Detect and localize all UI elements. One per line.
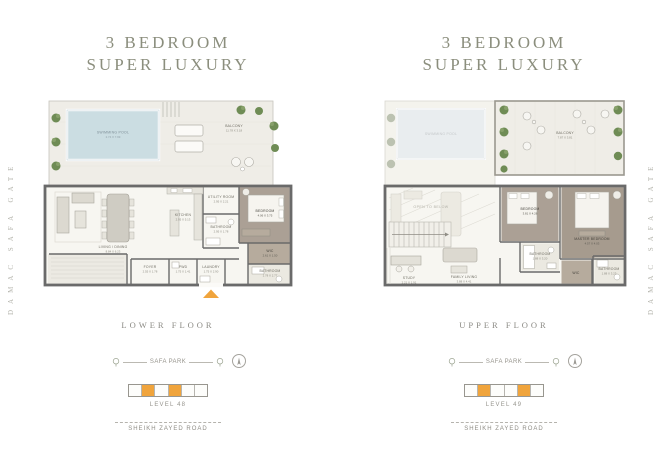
keyplan-unit	[155, 385, 168, 396]
compass-icon	[568, 354, 582, 368]
title-line2: SUPER LUXURY	[372, 54, 636, 76]
room-dims-wic: 2.61 X 1.50	[263, 254, 278, 258]
park-label: SAFA PARK	[486, 359, 522, 365]
room-dims-bathroom: 1.88 X 3.20	[533, 257, 548, 261]
terrace-ghost	[385, 101, 495, 186]
room-dims-powder: 1.75 X 1.41	[176, 270, 191, 274]
keyplan-unit	[182, 385, 195, 396]
room-label-utility: UTILITY ROOM	[208, 195, 234, 199]
room-label-master: MASTER BEDROOM	[574, 237, 609, 241]
deck-hatch	[48, 254, 126, 284]
room-label-bathroom: BATHROOM	[211, 225, 232, 229]
room-label-foyer: FOYER	[144, 265, 157, 269]
tree-icon	[552, 358, 560, 367]
upper-floor-panel: 3 BEDROOM SUPER LUXURY SWIMMING POOL	[372, 26, 636, 462]
room-label-bathroom2: BATHROOM	[599, 267, 620, 271]
room-dims-pool: 2.74 X 7.99	[106, 135, 121, 139]
keyplan-unit	[505, 385, 518, 396]
level-label-upper: LEVEL 49	[424, 402, 584, 408]
park-line	[123, 362, 147, 363]
park-row: SAFA PARK	[112, 356, 224, 368]
keyplan-unit	[129, 385, 142, 396]
page-title-lower: 3 BEDROOM SUPER LUXURY	[36, 32, 300, 76]
room-dims-balcony: 7.87 X 3.81	[558, 136, 573, 140]
park-row: SAFA PARK	[448, 356, 560, 368]
room-dims-balcony: 11.78 X 3.18	[226, 129, 243, 133]
room-label-wic: WIC	[572, 271, 580, 275]
keyplan-units	[464, 384, 544, 397]
keyplan-unit	[195, 385, 207, 396]
tree-icon	[112, 358, 120, 367]
floor-label-upper: UPPER FLOOR	[372, 320, 636, 330]
room-dims-study: 2.21 X 1.91	[402, 281, 417, 285]
keyplan-unit	[531, 385, 543, 396]
room-dims-utility: 2.95 X 2.21	[214, 200, 229, 204]
room-dims-bathroom: 2.95 X 1.78	[214, 230, 229, 234]
room-label-bathroom: BATHROOM	[530, 252, 551, 256]
room-label-family: FAMILY LIVING	[451, 275, 478, 279]
compass-icon	[232, 354, 246, 368]
road-label: SHEIKH ZAYED ROAD	[424, 426, 584, 432]
room-label-balcony: BALCONY	[556, 131, 574, 135]
lounger	[175, 125, 203, 136]
room-label-kitchen: KITCHEN	[175, 213, 192, 217]
entrance-arrow-icon	[203, 290, 219, 299]
road-label: SHEIKH ZAYED ROAD	[88, 426, 248, 432]
keyplan-unit-highlighted	[478, 385, 491, 396]
keyplan-footer-upper: SAFA PARK LEVEL 49 SHEIKH ZAYED ROAD	[424, 356, 584, 432]
room-label-bedroom: BEDROOM	[256, 209, 275, 213]
room-label-bathroom2: BATHROOM	[260, 269, 281, 273]
staircase	[389, 222, 451, 247]
park-label: SAFA PARK	[150, 359, 186, 365]
room-label-living: LIVING / DINING	[99, 245, 128, 249]
room-dims-bathroom2: 1.78 X 2.77	[263, 274, 278, 278]
page-title-upper: 3 BEDROOM SUPER LUXURY	[372, 32, 636, 76]
room-dims-family: 3.88 X 4.41	[457, 280, 472, 284]
room-label-bedroom2: BEDROOM	[521, 207, 540, 211]
title-line2: SUPER LUXURY	[36, 54, 300, 76]
side-label-left: DAMAC SAFA GATE	[4, 118, 18, 358]
room-dims-master: 4.57 X 4.03	[585, 242, 600, 246]
room-label-study: STUDY	[403, 276, 416, 280]
upper-floor-plan: SWIMMING POOL	[379, 98, 629, 312]
room-dims-bedroom2: 3.81 X 4.26	[523, 212, 538, 216]
room-label-powder: PWD	[179, 265, 188, 269]
room-label-wic: WIC	[266, 249, 274, 253]
room-dims-laundry: 1.75 X 2.90	[204, 270, 219, 274]
keyplan-unit-highlighted	[518, 385, 531, 396]
keyplan-units	[128, 384, 208, 397]
road-line	[115, 422, 221, 423]
room-dims-bedroom: 4.06 X 3.75	[258, 214, 273, 218]
room-label-open-below: OPEN TO BELOW	[413, 205, 448, 209]
lower-main-floor	[45, 186, 291, 298]
road-line	[451, 422, 557, 423]
title-line1: 3 BEDROOM	[372, 32, 636, 54]
terrace-chair	[245, 158, 254, 167]
lower-floor-plan: SWIMMING POOL 2.74 X 7.99 BALCONY 11.78 …	[43, 98, 293, 312]
room-dims-kitchen: 2.95 X 5.13	[176, 218, 191, 222]
room-dims-bathroom2: 1.88 X 3.23	[602, 272, 617, 276]
room-label-pool-ghost: SWIMMING POOL	[425, 132, 457, 136]
tree-icon	[216, 358, 224, 367]
room-dims-foyer: 2.55 X 1.78	[143, 270, 158, 274]
title-line1: 3 BEDROOM	[36, 32, 300, 54]
lounger	[175, 141, 203, 152]
lower-floor-panel: 3 BEDROOM SUPER LUXURY	[36, 26, 300, 462]
keyplan-unit	[465, 385, 478, 396]
keyplan-unit-highlighted	[142, 385, 155, 396]
room-label-laundry: LAUNDRY	[202, 265, 220, 269]
keyplan-unit-highlighted	[169, 385, 182, 396]
terrace-chair	[232, 158, 241, 167]
brochure-page: DAMAC SAFA GATE DAMAC SAFA GATE 3 BEDROO…	[0, 0, 662, 468]
room-label-pool: SWIMMING POOL	[97, 131, 129, 135]
floor-label-lower: LOWER FLOOR	[36, 320, 300, 330]
tree-icon	[448, 358, 456, 367]
upper-main-floor	[385, 186, 625, 285]
level-label-lower: LEVEL 48	[88, 402, 248, 408]
keyplan-unit	[491, 385, 504, 396]
side-label-right: DAMAC SAFA GATE	[644, 118, 658, 358]
entrance-gap	[199, 283, 223, 287]
park-line	[189, 362, 213, 363]
room-dims-living: 8.84 X 6.23	[106, 250, 121, 254]
park-line	[459, 362, 483, 363]
park-line	[525, 362, 549, 363]
keyplan-footer-lower: SAFA PARK LEVEL 48 SHEIKH ZAYED ROAD	[88, 356, 248, 432]
room-label-balcony: BALCONY	[225, 124, 243, 128]
